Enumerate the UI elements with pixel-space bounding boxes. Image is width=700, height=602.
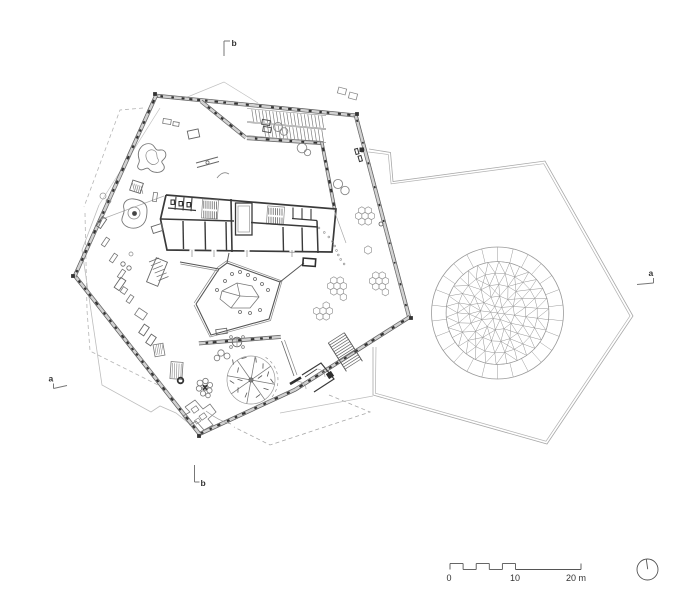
- svg-text:b: b: [201, 478, 206, 488]
- svg-text:20 m: 20 m: [566, 573, 586, 583]
- svg-text:a: a: [49, 374, 54, 384]
- svg-text:10: 10: [510, 573, 520, 583]
- svg-text:0: 0: [447, 573, 452, 583]
- svg-text:a: a: [649, 268, 654, 278]
- svg-text:b: b: [232, 38, 237, 48]
